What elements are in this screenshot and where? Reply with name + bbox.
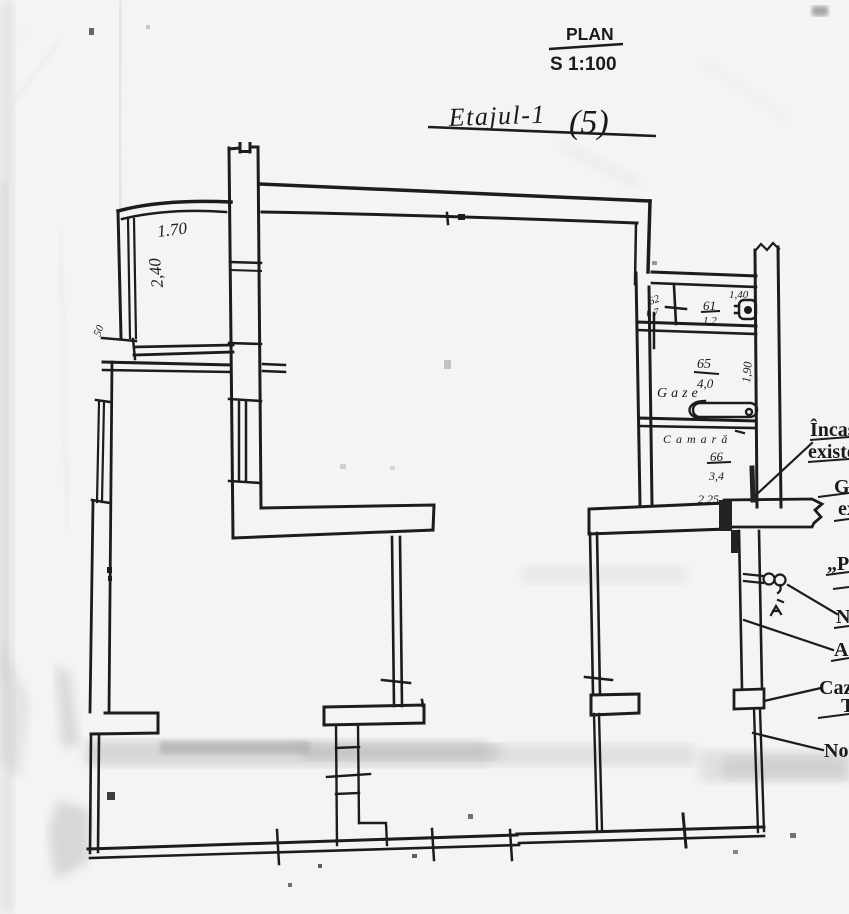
svg-text:Camară: Camară (663, 432, 732, 446)
svg-text:(5): (5) (569, 104, 609, 141)
svg-text:1,40: 1,40 (729, 289, 749, 301)
svg-text:2,40: 2,40 (145, 257, 167, 289)
svg-text:65: 65 (697, 357, 711, 372)
svg-text:No: No (824, 740, 848, 762)
svg-text:1,2: 1,2 (703, 315, 717, 327)
svg-text:2,25: 2,25 (698, 492, 719, 506)
svg-text:ex: ex (838, 498, 849, 520)
svg-text:3,4: 3,4 (708, 469, 724, 483)
svg-text:S 1:100: S 1:100 (550, 54, 617, 75)
svg-text:Gaze: Gaze (657, 386, 702, 401)
svg-text:1.70: 1.70 (156, 218, 188, 241)
svg-text:N: N (836, 606, 849, 628)
svg-text:1,90: 1,90 (739, 361, 755, 383)
svg-text:PLAN: PLAN (566, 24, 614, 44)
